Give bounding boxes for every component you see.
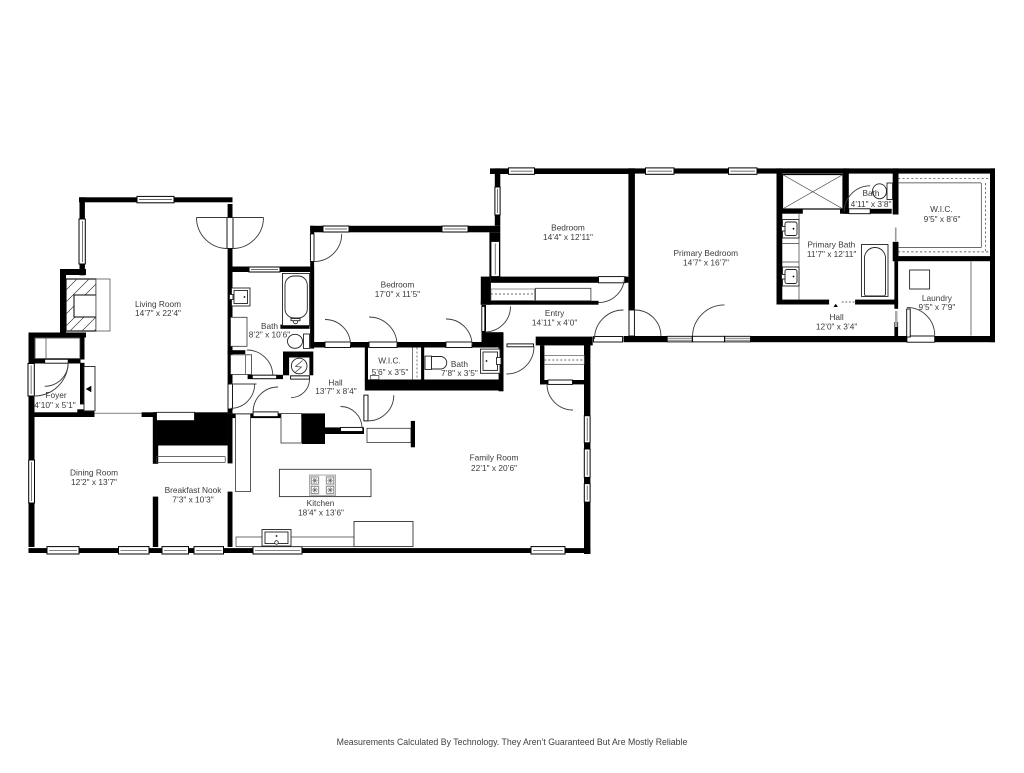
- svg-text:Hall: Hall: [829, 312, 843, 322]
- svg-text:W.I.C.: W.I.C.: [930, 204, 953, 214]
- svg-text:14’11" x 4’0": 14’11" x 4’0": [532, 317, 577, 327]
- svg-text:18’4" x 13’6": 18’4" x 13’6": [298, 508, 344, 518]
- svg-text:9’5" x 7’9": 9’5" x 7’9": [919, 302, 956, 312]
- svg-text:12’2" x 13’7": 12’2" x 13’7": [71, 477, 117, 487]
- svg-text:5’6" x 3’5": 5’6" x 3’5": [372, 367, 409, 377]
- svg-text:Kitchen: Kitchen: [307, 498, 335, 508]
- svg-text:Bath: Bath: [862, 188, 879, 198]
- svg-text:12’0" x 3’4": 12’0" x 3’4": [816, 322, 857, 332]
- svg-text:Primary Bath: Primary Bath: [807, 239, 855, 249]
- svg-text:4’11" x 3’8": 4’11" x 3’8": [851, 199, 892, 209]
- svg-text:W.I.C.: W.I.C.: [378, 356, 401, 366]
- svg-text:Measurements Calculated By Tec: Measurements Calculated By Technology. T…: [337, 737, 688, 747]
- svg-text:11’7" x 12’11": 11’7" x 12’11": [807, 249, 856, 259]
- svg-text:Foyer: Foyer: [45, 390, 66, 400]
- svg-text:Bedroom: Bedroom: [551, 222, 585, 232]
- svg-text:Family Room: Family Room: [470, 452, 519, 462]
- svg-text:14’7" x 16’7": 14’7" x 16’7": [683, 257, 729, 267]
- svg-text:8’2" x 10’6": 8’2" x 10’6": [249, 330, 290, 340]
- svg-text:22’1" x 20’6": 22’1" x 20’6": [471, 463, 517, 473]
- svg-text:13’7" x 8’4": 13’7" x 8’4": [315, 386, 356, 396]
- svg-text:9’5" x 8’6": 9’5" x 8’6": [924, 214, 961, 224]
- svg-text:7’8" x 3’5": 7’8" x 3’5": [441, 368, 478, 378]
- svg-text:4’10" x 5’1": 4’10" x 5’1": [34, 400, 75, 410]
- svg-text:17’0" x 11’5": 17’0" x 11’5": [375, 289, 420, 299]
- svg-text:14’7" x 22’4": 14’7" x 22’4": [135, 308, 181, 318]
- svg-text:14’4" x 12’11": 14’4" x 12’11": [543, 232, 593, 242]
- svg-text:7’3" x 10’3": 7’3" x 10’3": [172, 495, 213, 505]
- svg-text:Breakfast Nook: Breakfast Nook: [165, 485, 223, 495]
